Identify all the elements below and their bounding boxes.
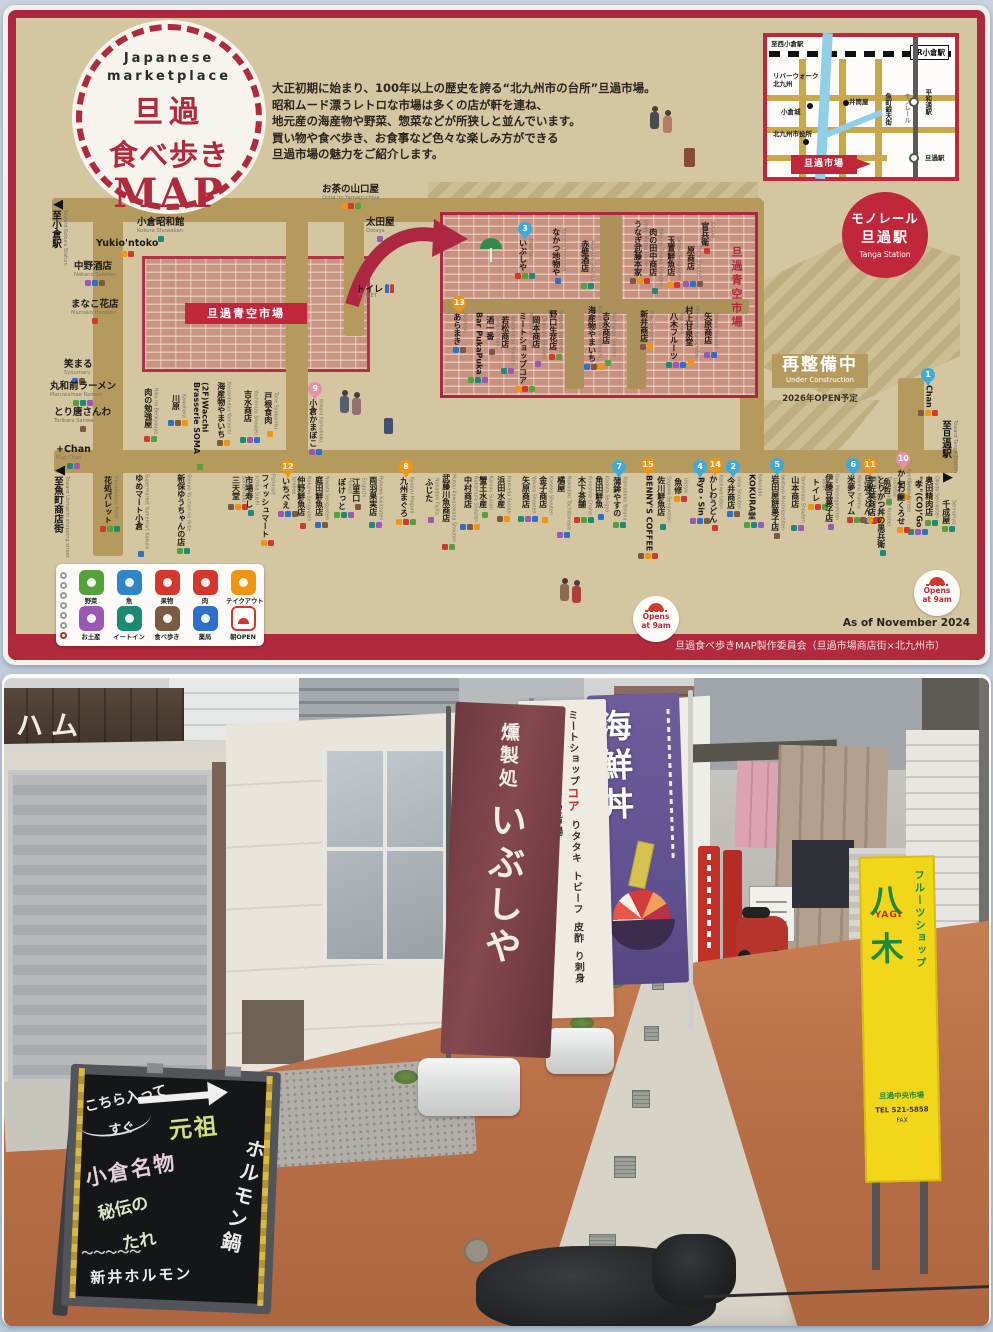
shop-category-icons [598, 514, 604, 520]
legend-item-薬局: 薬局 [188, 606, 222, 641]
shop-romaji: Nakamura Shouten [472, 476, 478, 522]
map-pin-8: 8 [399, 460, 413, 474]
shop-category-icons [144, 436, 157, 442]
drain-cover [644, 1026, 659, 1041]
shop-category-icons [942, 526, 955, 532]
shop-name: Chan [924, 385, 933, 408]
shop-name: 川原 [171, 394, 180, 418]
minimap-nishikokura: 至西小倉駅 [771, 41, 804, 49]
shop-category-icons [468, 377, 488, 383]
shop-romaji: Yamamoto Shouten [799, 476, 805, 523]
map-pin-3: 3 [518, 222, 532, 236]
legend-item-お土産: お土産 [74, 606, 108, 641]
shop-name: 伊藤豆菓子店 [824, 474, 833, 522]
map-shop-yukio-ntoko: Yukio'ntoko [96, 238, 158, 257]
legend-label: 果物 [150, 596, 184, 605]
shop-romaji: Ootaya [366, 228, 395, 234]
shop-name: 海産物やまいち [587, 306, 596, 362]
shop-category-icons [442, 544, 455, 550]
shop-name: 木下茶舗 [577, 476, 586, 515]
ibushiya-banner-top: 燻製処 [493, 722, 523, 792]
yellow-tape [69, 1068, 85, 1298]
shop-category-icons [309, 449, 322, 455]
shop-romaji: Ibushiya [527, 239, 533, 271]
shop-category-icons [638, 553, 658, 559]
shop-name: フィッシュマート [260, 474, 269, 538]
map-shop-maruwamae-ramen: 丸和前ラーメンMaruwamae Ramen [50, 378, 116, 406]
minimap-tanga-station: 旦過駅 [925, 155, 945, 163]
toilet-label-center: トイレ TOILET [356, 282, 394, 295]
shop-romaji: Hanadokoro Palet [112, 476, 118, 524]
shop-name: Yukio'ntoko [96, 238, 158, 249]
map-pin-13: 13 [452, 296, 466, 310]
map-pin-10: 10 [896, 452, 910, 466]
map-shop-wakamatsu-shouten: 若松商店Wakamatsu Shouten [500, 316, 515, 374]
legend-item-魚: 魚 [112, 570, 146, 605]
opens-line2: at 9am [641, 621, 670, 630]
shop-romaji: Kanbei [709, 222, 715, 246]
shop-name: 花処パレット [103, 476, 112, 524]
ibushiya-banner: 燻製処 いぶしや [440, 702, 565, 1058]
map-shop-nakano-sengyoten: 仲野鮮魚店Nakano Sengyoten [296, 476, 311, 529]
shop-romaji: Imai Shouten [735, 477, 741, 509]
shop-name: 村上甘泉堂 [684, 306, 693, 358]
shop-romaji: Tone Syokuniku [272, 392, 278, 429]
shop-romaji: Yoshinaga Shouten [610, 312, 616, 358]
shop-name: 吉水商店 [243, 390, 252, 435]
shop-category-icons [581, 283, 594, 289]
intro-paragraph: 大正初期に始まり、100年以上の歴史を誇る“北九州市の台所”旦過市場。 昭和ムー… [272, 80, 692, 163]
shop-romaji: Noguchi Seikaten [557, 310, 563, 352]
sunrise-icon [929, 577, 945, 585]
map-shop-kokura-kamaboko: 9小倉かまぼこKokura Kamaboko [308, 382, 323, 455]
shop-category-icons [267, 431, 273, 437]
map-shop-niku-no-tanaka-shouten: 肉の田中商店Niku no Tanaka Shouten [648, 228, 663, 294]
shop-category-icons [240, 437, 260, 443]
shop-name: ぽけっと [337, 478, 346, 510]
shop-name: 中野酒店 [74, 258, 116, 272]
direction-arrow-icon: ◀ [55, 466, 65, 476]
map-shop-kokurado: KOKURA堂Kokurado [744, 474, 764, 528]
map-shop-nakamura-shouten: 中村商店Nakamura Shouten [460, 476, 480, 530]
spiral-binding [60, 602, 67, 609]
map-pin-5: 5 [770, 458, 784, 472]
shop-name: 肉の勉強屋 [143, 388, 152, 434]
map-shop-2f-wacchi-brasserie-soma: (2F)Wacchi Brasserie SOMA [191, 382, 209, 470]
banner-base-tank [418, 1058, 520, 1116]
shop-romaji: Plus Chan [56, 455, 91, 461]
shop-category-icons [613, 522, 626, 528]
shop-category-icons [727, 511, 740, 517]
shop-name: 若松商店 [500, 316, 509, 366]
shop-romaji: Kaneko Shouten [547, 476, 553, 515]
shop-name: 金子商店 [538, 476, 547, 515]
shop-romaji: Kadota Sengyo [603, 476, 609, 512]
shop-category-icons [674, 496, 687, 502]
map-shop-yoshinaga-shouten: 吉永商店Yoshinaga Shouten [601, 312, 616, 366]
map-shop-nukadaki-tachibanaya: 橘屋Nukadaki Tachibanaya [556, 476, 571, 538]
shop-romaji: Wakamatsu Shouten [509, 316, 515, 366]
menu-shop-name: ミートショップ [566, 710, 579, 787]
shop-romaji: Sennariya [950, 500, 956, 524]
board-hinge [147, 1063, 163, 1074]
menu-item: 皮酢 [568, 922, 585, 944]
shop-romaji: Nukadaki Fujita [433, 478, 439, 515]
map-shop-torikara-sanwa: とり唐さんわTorikara Sanwa [54, 404, 111, 432]
shop-romaji: Kokura Showakan [137, 228, 185, 234]
donburi-illustration [612, 889, 672, 949]
minimap-heiwadori: 平和通駅 [923, 89, 931, 115]
shop-name: 千成屋 [941, 500, 950, 524]
legend-icon-野菜 [79, 570, 104, 595]
shop-category-icons [515, 273, 535, 279]
sunrise-icon [648, 603, 664, 611]
map-shop-mutou-kawazakana-shouten: 武藤川魚商店Mutou Kawazakana Shouten [441, 474, 456, 550]
suitcase-illustration [384, 418, 393, 434]
map-shop-yagi-fruit: 八木フルーツYagi Fruit [666, 312, 686, 368]
shop-category-icons [428, 517, 434, 523]
shop-name: BENNY'S COFFEE [644, 475, 653, 551]
shop-romaji: Kokura Kamaboko [317, 399, 323, 447]
legend-item-イートイン: イートイン [112, 606, 146, 641]
shop-category-icons [100, 526, 120, 532]
cityhall-dot [803, 139, 809, 145]
shop-romaji: Kinoshita Chaho [586, 476, 592, 515]
shop-romaji: Nakano Sengyoten [305, 476, 311, 521]
shop-name: 新保ゆうちゃんの店 [176, 474, 185, 546]
people-illustration [352, 392, 361, 416]
map-shop-kashiwaya-kurose: 10かしわ屋くろせKashiwaya Kurose [896, 452, 911, 533]
map-shop-unagi-mutou-honke: うなぎ武藤本家Unagi Mutou Honke [630, 220, 650, 284]
shop-romaji: Kamaboko Yasuno [621, 477, 627, 520]
minimap-cityhall: 北九州市役所 [773, 131, 812, 139]
shop-name: 丸和前ラーメン [50, 378, 116, 392]
shop-category-icons [377, 236, 383, 242]
shop-name: ふじた [424, 478, 433, 515]
shop-category-icons [355, 504, 361, 510]
map-shop-shinpo-yu-chan-no-mise: 新保ゆうちゃんの店Shinpo Yu-chan no mise [176, 474, 191, 554]
shop-name: 矢原商店 [521, 476, 530, 514]
tanga-station-dot [909, 153, 919, 163]
shop-romaji: Itou Mamegashiten [833, 474, 839, 522]
yagi-shop-type: フルーツショップ [912, 869, 929, 969]
shop-romaji: Okamoto Shouten [540, 316, 546, 359]
map-shop-ibushiya: 3いぶしやIbushiya [515, 222, 535, 279]
legend-label: 食べ歩き [150, 632, 184, 641]
toilet-en: TOILET [358, 293, 377, 299]
minimap-uomachi: 魚町銀天街 [883, 93, 891, 126]
people-illustration [560, 578, 569, 602]
shop-romaji: Iwataya Mochikashiten [779, 475, 785, 531]
shop-category-icons [489, 349, 495, 355]
area-minimap: 至西小倉駅 JR小倉駅 リバーウォーク 北九州 井筒屋 小倉城 北九州市役所 魚… [763, 33, 959, 181]
shop-category-icons [897, 527, 910, 533]
badge-line2: 旦過駅 [842, 227, 928, 247]
map-shop-kyusyu-maguro: 8九州まぐろKyusyu Maguro [396, 460, 416, 525]
shop-name: ミートショップコア [518, 312, 527, 384]
minimap-monorail-label: モノレール [903, 93, 910, 123]
legend-item-肉: 肉 [188, 570, 222, 605]
map-shop-tone-syokuniku: 戸根食肉Tone Syokuniku [263, 392, 278, 437]
shop-name: 九州まぐろ [399, 477, 408, 517]
dark-vent [242, 1000, 304, 1064]
shop-romaji: Fishmart [269, 474, 275, 538]
shop-category-icons [92, 318, 98, 324]
shop-name: ゆめマート小倉 [134, 474, 143, 549]
roller-shutter [8, 770, 212, 1084]
yagi-romaji: YAGI [875, 910, 903, 921]
map-shop-yahara-shouten: 矢原商店Yahara Shouten [703, 312, 718, 358]
map-shop-maimu-maimu: 6米夢マイムMaimu Maimu [846, 458, 861, 523]
shop-romaji: Niku no Tanaka Shouten [657, 228, 663, 286]
shop-name: Bar PukaPuka [474, 312, 483, 375]
shop-name: 玉置鮮魚店 [666, 236, 675, 280]
shop-romaji: Yagi Fruit [678, 312, 684, 360]
spiral-binding [60, 612, 67, 619]
legend-label: 薬局 [188, 632, 222, 641]
legend-item-食べ歩き: 食べ歩き [150, 606, 184, 641]
shop-name: 今井商店 [726, 477, 735, 509]
shop-category-icons [278, 511, 298, 517]
map-pin-11: 11 [863, 458, 877, 472]
shop-romaji: Ryouwa Kajitsuten [377, 476, 383, 520]
shop-name: うなぎ武藤本家 [633, 220, 642, 276]
legend-icon-イートイン [117, 606, 142, 631]
izutsuya-dot [843, 100, 849, 106]
direction-toward-tanga-station: 至旦過駅Toward Tanga Station▶ [938, 420, 958, 483]
shop-name: 赤壁酒店 [580, 240, 589, 281]
legend-icon-果物 [155, 570, 180, 595]
shop-category-icons [574, 517, 594, 523]
logo-title-3: MAP [82, 174, 256, 214]
shop-romaji: Murakami Kansendou [693, 306, 699, 358]
cabin-wood-post [212, 762, 226, 1096]
menu-item: り刺身 [569, 951, 586, 984]
legend-label: 魚 [112, 596, 146, 605]
shop-category-icons [535, 361, 541, 367]
shop-name: 太田屋 [366, 214, 395, 228]
map-pin-7: 7 [612, 460, 626, 474]
map-shop-uosyu: 魚修Uosyu [673, 478, 688, 502]
map-pin-2: 2 [726, 460, 740, 474]
shop-name: 戸根食肉 [263, 392, 272, 429]
shop-romaji: Eriguchi [360, 478, 366, 502]
shop-name: 笑まる [64, 356, 93, 370]
map-shop-imai-shouten: 2今井商店Imai Shouten [726, 460, 741, 517]
street-photo: ハム [4, 678, 989, 1326]
red-banner [698, 846, 720, 964]
shop-romaji: Maruwamae Ramen [50, 392, 116, 398]
construction-note: 2026年OPEN予定 [768, 392, 872, 404]
shop-name: 角田鮮魚 [594, 476, 603, 512]
opens-9am-badge: Opensat 9am [633, 596, 679, 642]
shop-romaji: Unagi Mutou Honke [642, 220, 648, 276]
shop-romaji: Kashiwa Udon [717, 475, 723, 523]
map-shop-sagawa-sengyoten: 佐川鮮魚店Sagawa Sengyoten [656, 476, 671, 530]
shop-category-icons [605, 360, 611, 366]
shop-category-icons [666, 362, 686, 368]
shop-romaji: Nakatsu Jimonoya [560, 228, 566, 276]
map-shop-nakatsu-jimonoya: なかつ地物やNakatsu Jimonoya [551, 228, 566, 284]
map-shop-kadota-sengyo: 角田鮮魚Kadota Sengyo [594, 476, 609, 520]
direction-arrow-icon: ▶ [943, 473, 953, 483]
shop-romaji: Kaniou Suisan [487, 476, 493, 510]
map-shop-ryo-sin: 4Ryo・Sin [690, 460, 710, 524]
map-shop-arai-shouten: 新井商店Arai Shouten [639, 310, 654, 350]
shop-name: 庭田鮮魚店 [314, 476, 323, 520]
shop-category-icons [518, 516, 538, 522]
shop-romaji: Kokurado [756, 474, 762, 520]
direction-romaji: Toward Kokura Station [62, 210, 68, 266]
spiral-binding [60, 582, 67, 589]
map-shop-ryouwa-kajitsuten: 両羽果実店Ryouwa Kajitsuten [368, 476, 383, 528]
map-shop-niku-no-benkyouya: 肉の勉強屋Niku no Benkyouya [143, 388, 158, 442]
shop-category-icons [138, 551, 144, 557]
shop-name: 吉永商店 [601, 312, 610, 358]
shop-romaji: Yoshimizu Shouten [252, 390, 258, 435]
map-shop-ichiba-sushi: 市場寿しIchiba Sushi [244, 476, 259, 516]
menu-item: りタタキ [566, 820, 583, 864]
map-shop-nukadaki-fujita: ふじたNukadaki Fujita [424, 478, 439, 523]
map-shop-tamaki-sengyoten: 玉置鮮魚店Tamaki Sengyoten [666, 236, 681, 288]
shop-category-icons [918, 410, 938, 416]
opens-line2: at 9am [922, 595, 951, 604]
shop-name: お茶の山口屋 [322, 181, 379, 195]
shop-romaji: Sake Ichiban [494, 316, 500, 347]
map-pin-9: 9 [308, 382, 322, 396]
shop-category-icons [774, 533, 780, 539]
minimap-izutsuya: 井筒屋 [849, 99, 869, 107]
chalk-wave: 〜〜〜〜〜 [81, 1243, 141, 1262]
yagi-fruit-sign: 八 YAGI 木 フルーツショップ 旦過中央市場 TEL 521-5858 FA… [859, 855, 942, 1183]
minimap-castle: 小倉城 [781, 109, 801, 117]
shop-category-icons [300, 523, 306, 529]
shop-category-icons [640, 344, 653, 350]
shop-romaji: Syoumaru [64, 370, 93, 376]
map-shop-kashiwa-udon: 14かしわうどんKashiwa Udon [708, 458, 723, 531]
sign-leg [920, 1178, 928, 1274]
sign-leg [872, 1178, 880, 1270]
map-shop-iwataya-mochikashiten: 5岩田屋餅菓子店Iwataya Mochikashiten [770, 458, 785, 539]
shop-category-icons [460, 524, 480, 530]
kaisendon-tag [628, 841, 654, 890]
ham-sign-text: ハム [16, 704, 86, 743]
shop-name: 中村商店 [463, 476, 472, 522]
drain-cover [614, 1156, 636, 1178]
shop-category-icons [248, 510, 254, 516]
shop-name: 小倉かまぼこ [308, 399, 317, 447]
shop-name: +Chan [56, 444, 91, 455]
yagi-fax: FAX [866, 1116, 938, 1125]
shop-name: 八木フルーツ [669, 312, 678, 360]
shop-name: いちべえ [281, 477, 290, 509]
shop-name: 官兵衛 [700, 222, 709, 246]
shop-name: 両羽果実店 [368, 476, 377, 520]
shop-category-icons [652, 288, 658, 294]
shop-name: 蒲鉾やすの [612, 477, 621, 520]
yagi-tel: TEL 521-5858 [866, 1105, 938, 1115]
shop-category-icons [683, 281, 703, 287]
map-shop-yamamoto-shouten: 山本商店Yamamoto Shouten [790, 476, 805, 531]
heiwadori-station-dot [909, 97, 919, 107]
shop-category-icons [557, 532, 570, 538]
map-logo: Japanese marketplace 旦過 食べ歩き MAP [76, 24, 262, 210]
people-illustration [340, 390, 349, 414]
shop-category-icons [85, 280, 105, 286]
shop-name: まなこ花店 [71, 296, 119, 310]
shop-romaji: Niku no Benkyouya [152, 388, 158, 434]
map-shop-torikatsudon-kurobei: とりかつ丼の黒兵衛Torikatsudon Kurobei [876, 476, 891, 556]
aozora-market-banner: 旦過青空市場 [185, 303, 307, 324]
drain-cover [632, 1090, 650, 1108]
map-shop-kamaboko-yasuno: 7蒲鉾やすのKamaboko Yasuno [612, 460, 627, 528]
map-shop-sake-ichiban: 酒一番Sake Ichiban [485, 316, 500, 355]
shop-category-icons [704, 352, 717, 358]
people-illustration [650, 106, 659, 130]
shop-category-icons [880, 550, 886, 556]
shop-name: かしわ屋くろせ [896, 469, 905, 525]
map-shop-yahara-shouten: 矢原商店Yahara Shouten [518, 476, 538, 522]
shop-name: 蟹王水産 [478, 476, 487, 510]
shop-category-icons [341, 203, 361, 209]
shop-name: 浜田水産 [496, 476, 505, 514]
shop-name: 山本商店 [790, 476, 799, 523]
map-shop-hamada-suisan: 浜田水産Hamada Suisan [496, 476, 511, 522]
shop-name: とりかつ丼の黒兵衛 [876, 476, 885, 548]
shop-category-icons [261, 540, 274, 546]
map-shop-kawahara: 川原Kawahara [168, 394, 188, 426]
shop-category-icons [369, 522, 382, 528]
map-shop-itou-mamegashiten: 伊藤豆菓子店Itou Mamegashiten [824, 474, 839, 530]
shop-romaji: Nakano Saketen [74, 272, 116, 278]
shop-romaji: Kashiwaya Kurose [905, 469, 911, 525]
shop-name: 原商店 [686, 246, 695, 279]
suitcase-illustration [684, 148, 695, 167]
round-cover [464, 1238, 490, 1264]
shop-romaji: Ocha no Yamaguchiya [322, 195, 379, 201]
shop-category-icons [542, 517, 548, 523]
shop-name: 岩田屋餅菓子店 [770, 475, 779, 531]
shop-name: 肉の田中商店 [648, 228, 657, 286]
legend-item-野菜: 野菜 [74, 570, 108, 605]
chalk-arrow-head [207, 1080, 229, 1106]
shop-name: 市場寿し [244, 476, 253, 508]
map-shop-sennariya: 千成屋Sennariya [941, 500, 956, 532]
map-shop-nakano-saketen: 中野酒店Nakano Saketen [74, 258, 116, 286]
scooter [736, 916, 788, 956]
legend-icon-魚 [117, 570, 142, 595]
inner-road-up [600, 215, 622, 301]
legend-icon-テイクアウト [231, 570, 256, 595]
shop-romaji: Uosyu [682, 478, 688, 494]
restroom-icon [385, 284, 394, 293]
shop-romaji: Ichiba Sushi [253, 476, 259, 508]
shop-category-icons [925, 520, 938, 526]
banner-base-tank [546, 1028, 614, 1074]
shop-category-icons [334, 512, 354, 518]
shop-romaji: Arai Shouten [648, 310, 654, 342]
shop-romaji: Nukadaki Tachibanaya [565, 476, 571, 530]
legend-label: イートイン [112, 632, 146, 641]
shop-name: 新井商店 [639, 310, 648, 342]
aozora-side-label: 旦過青空市場 [728, 246, 744, 330]
minimap-riverwalk: リバーウォーク 北九州 [773, 73, 819, 89]
shop-romaji: Mamako Hanaten [71, 310, 119, 316]
map-pin-14: 14 [708, 458, 722, 472]
road-mid-vertical [286, 218, 308, 458]
shop-name: 海産物やまいち [216, 382, 225, 438]
shop-romaji: Supermarket Yumemart Kokura [143, 474, 149, 549]
